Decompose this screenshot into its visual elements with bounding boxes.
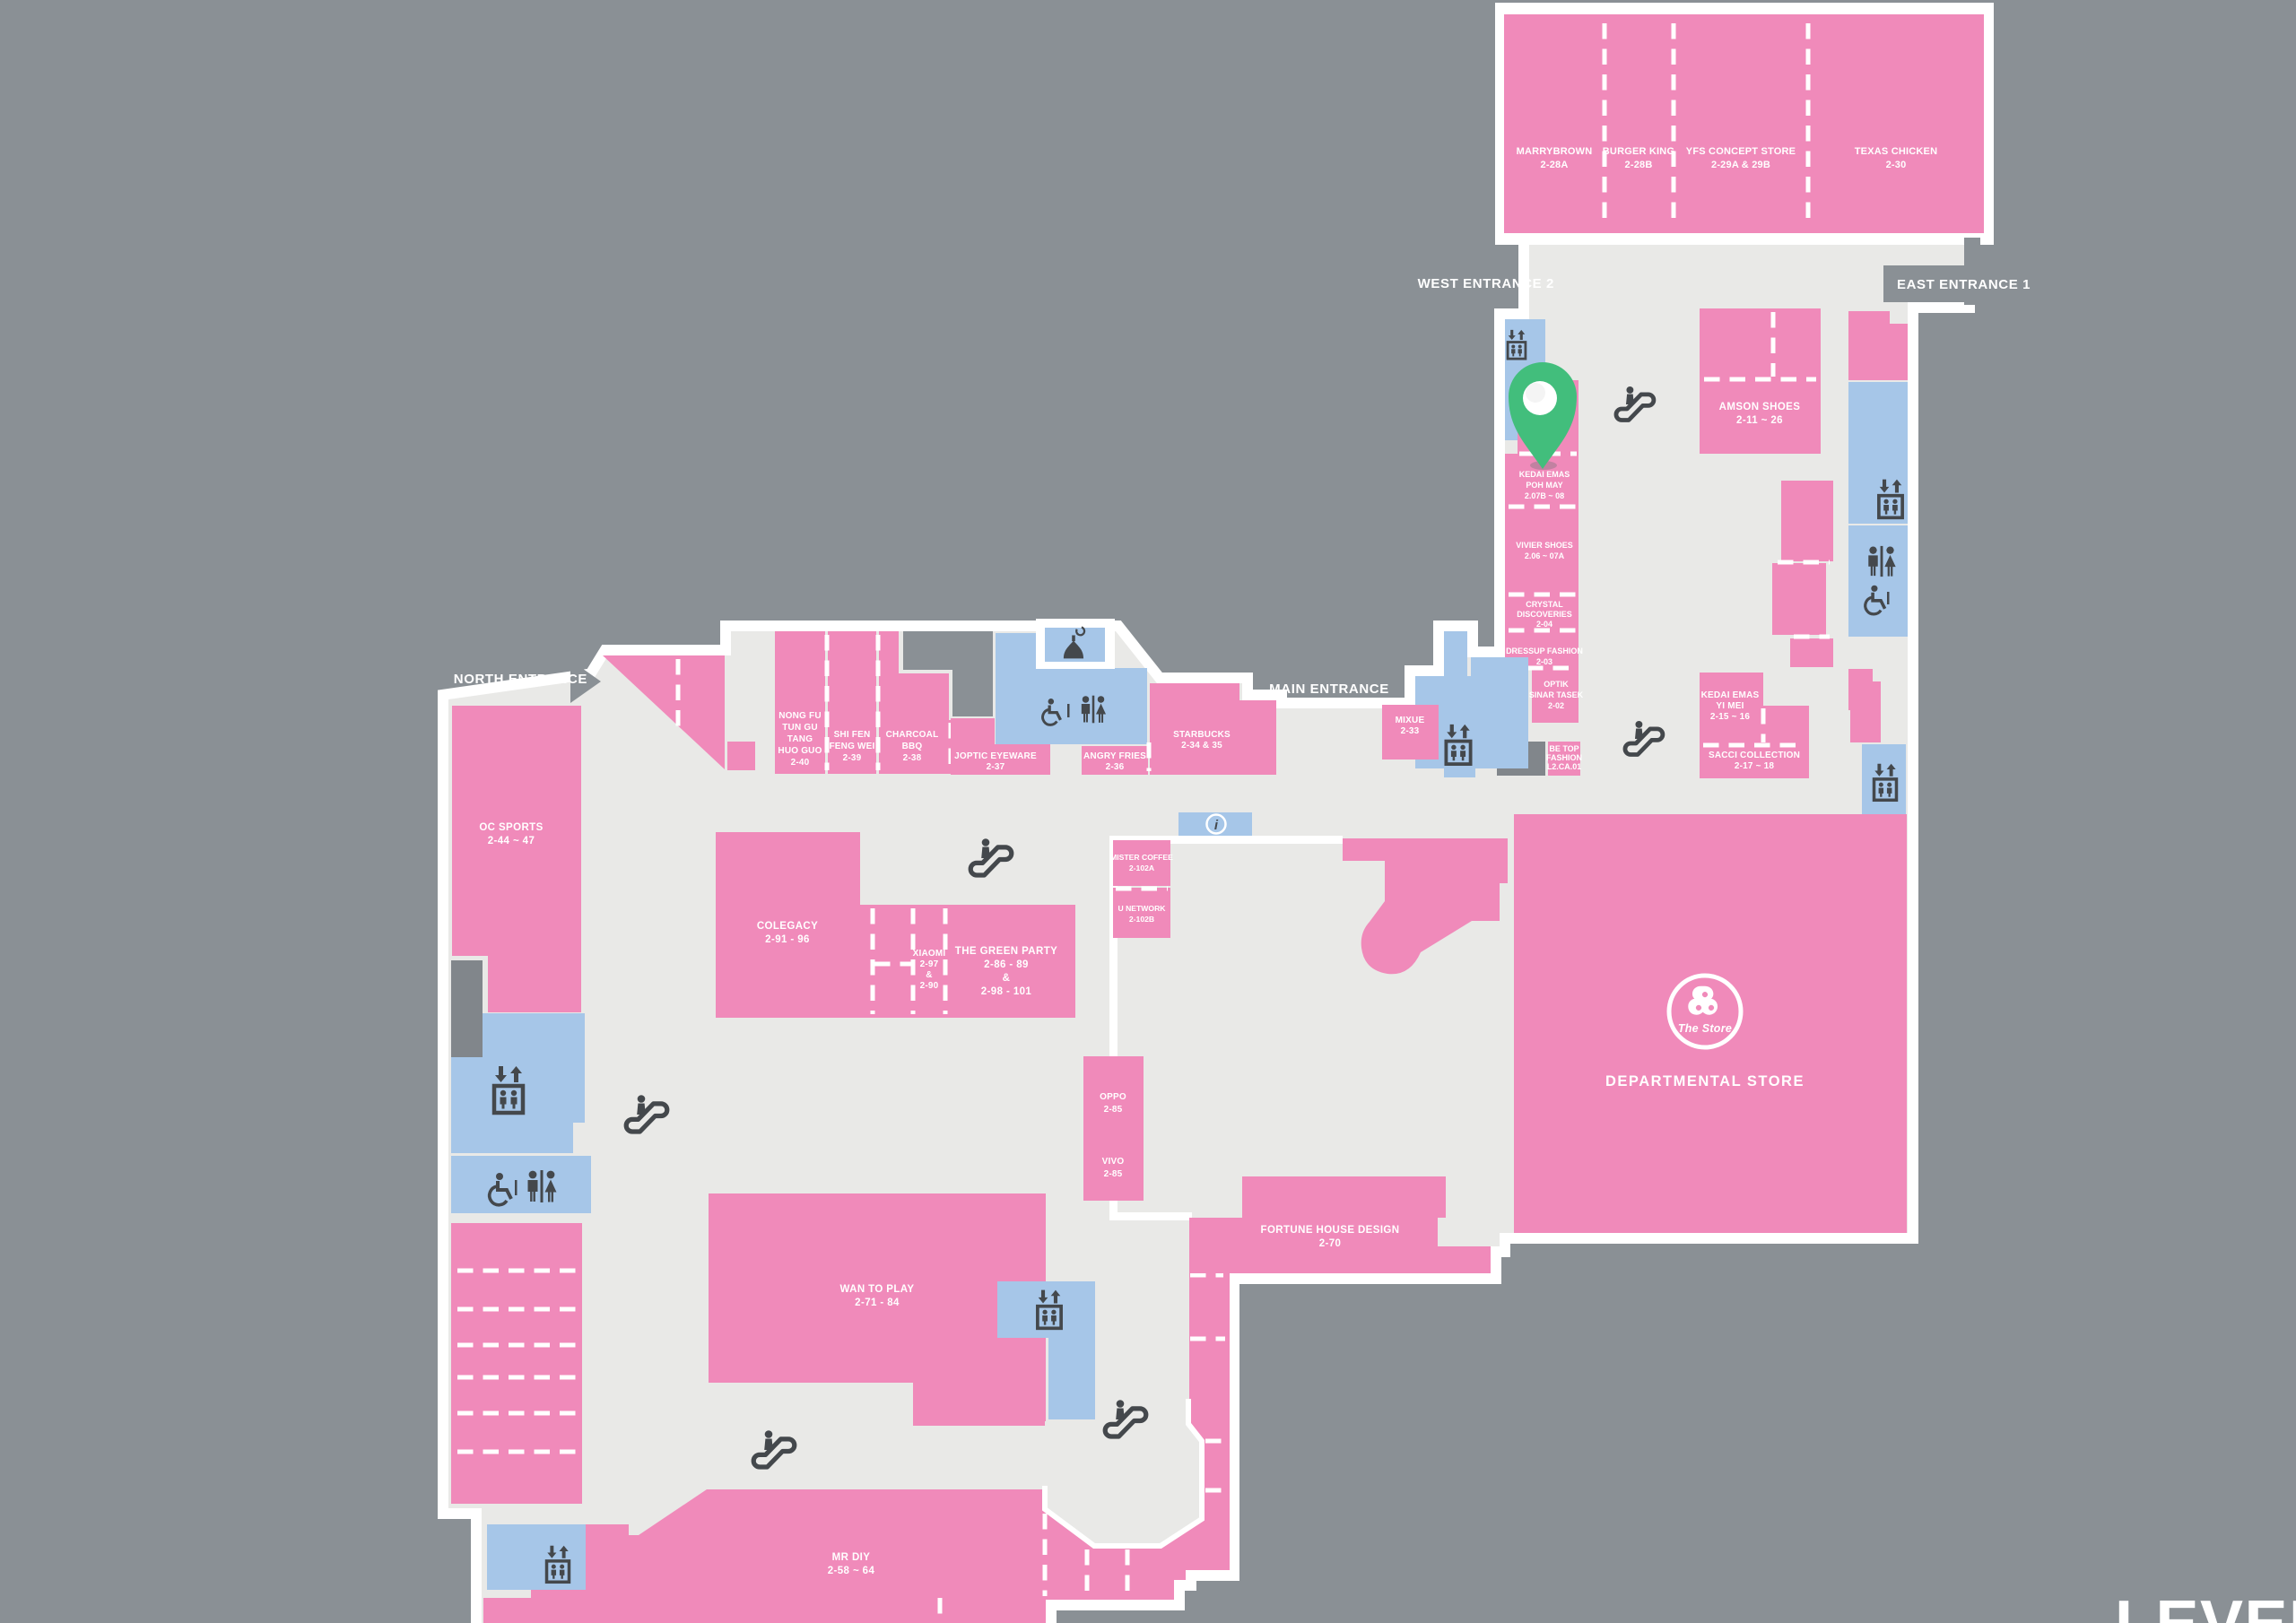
svg-text:SHI FEN: SHI FEN (834, 730, 871, 740)
svg-text:2-33: 2-33 (1401, 726, 1420, 736)
svg-text:BE TOP: BE TOP (1549, 744, 1578, 753)
svg-text:2-102A: 2-102A (1129, 864, 1154, 872)
svg-text:&: & (1003, 973, 1011, 984)
svg-text:CHARCOAL: CHARCOAL (886, 730, 939, 740)
svg-text:KEDAI EMAS: KEDAI EMAS (1701, 690, 1760, 700)
svg-text:2-97: 2-97 (920, 959, 939, 969)
svg-text:2-58 ~ 64: 2-58 ~ 64 (828, 1566, 875, 1576)
svg-text:THE GREEN PARTY: THE GREEN PARTY (955, 946, 1057, 957)
svg-text:2-39: 2-39 (843, 753, 862, 763)
svg-text:2-98 - 101: 2-98 - 101 (981, 986, 1032, 997)
svg-text:2-71 - 84: 2-71 - 84 (855, 1298, 900, 1308)
svg-text:MISTER COFFEE: MISTER COFFEE (1110, 853, 1173, 862)
svg-text:The Store: The Store (1678, 1022, 1732, 1035)
svg-text:WEST ENTRANCE 2: WEST ENTRANCE 2 (1418, 276, 1554, 291)
svg-text:2-02: 2-02 (1548, 701, 1564, 710)
svg-text:HUO GUO: HUO GUO (778, 746, 822, 756)
svg-text:WAN TO PLAY: WAN TO PLAY (840, 1284, 915, 1295)
svg-text:L2.CA.01: L2.CA.01 (1547, 762, 1582, 771)
svg-text:FENG WEI: FENG WEI (829, 742, 874, 751)
svg-text:SINAR TASEK: SINAR TASEK (1529, 690, 1584, 699)
svg-text:2-91 - 96: 2-91 - 96 (765, 934, 810, 945)
svg-text:&: & (926, 970, 932, 980)
svg-text:BBQ: BBQ (902, 742, 923, 751)
svg-text:2-86 - 89: 2-86 - 89 (984, 959, 1029, 970)
svg-text:2-102B: 2-102B (1129, 915, 1154, 924)
svg-text:2-29A & 29B: 2-29A & 29B (1711, 160, 1770, 170)
svg-text:FASHION: FASHION (1546, 753, 1582, 762)
svg-text:2-44 ~ 47: 2-44 ~ 47 (488, 836, 535, 846)
svg-text:2.06 ~ 07A: 2.06 ~ 07A (1525, 551, 1565, 560)
svg-text:POH MAY: POH MAY (1526, 481, 1562, 490)
svg-text:2-15 ~ 16: 2-15 ~ 16 (1710, 712, 1751, 722)
svg-text:2-28B: 2-28B (1625, 160, 1653, 170)
svg-text:CRYSTAL: CRYSTAL (1526, 600, 1563, 609)
svg-text:2-04: 2-04 (1536, 620, 1552, 629)
svg-text:ANGRY FRIES: ANGRY FRIES (1083, 751, 1146, 761)
svg-text:2-85: 2-85 (1104, 1105, 1123, 1115)
svg-text:VIVO: VIVO (1102, 1157, 1125, 1167)
svg-text:KEDAI EMAS: KEDAI EMAS (1519, 470, 1570, 479)
svg-text:NORTH ENTRANCE: NORTH ENTRANCE (454, 672, 587, 687)
svg-text:MARRYBROWN: MARRYBROWN (1517, 146, 1593, 157)
svg-text:FORTUNE HOUSE DESIGN: FORTUNE HOUSE DESIGN (1261, 1225, 1400, 1236)
svg-text:DRESSUP FASHION: DRESSUP FASHION (1506, 647, 1583, 655)
svg-text:2-37: 2-37 (987, 762, 1005, 772)
svg-text:NONG FU: NONG FU (778, 711, 822, 721)
svg-text:2-11 ~ 26: 2-11 ~ 26 (1736, 415, 1783, 426)
svg-text:TUN GU: TUN GU (782, 723, 818, 733)
svg-text:2-38: 2-38 (903, 753, 922, 763)
svg-text:OPPO: OPPO (1100, 1092, 1126, 1102)
svg-text:2-34 & 35: 2-34 & 35 (1181, 741, 1222, 751)
svg-text:EAST ENTRANCE 1: EAST ENTRANCE 1 (1897, 277, 2031, 292)
svg-text:2-28A: 2-28A (1541, 160, 1569, 170)
svg-text:2-36: 2-36 (1106, 762, 1125, 772)
svg-text:U NETWORK: U NETWORK (1118, 904, 1167, 913)
svg-text:2-30: 2-30 (1886, 160, 1907, 170)
svg-text:YFS CONCEPT STORE: YFS CONCEPT STORE (1686, 146, 1796, 157)
svg-text:2-70: 2-70 (1319, 1238, 1342, 1249)
svg-text:DEPARTMENTAL STORE: DEPARTMENTAL STORE (1605, 1073, 1805, 1089)
svg-text:XIAOMI: XIAOMI (913, 949, 946, 959)
svg-text:OC SPORTS: OC SPORTS (479, 822, 543, 833)
svg-text:AMSON SHOES: AMSON SHOES (1719, 402, 1801, 412)
svg-text:BURGER KING: BURGER KING (1603, 146, 1674, 157)
svg-text:TANG: TANG (787, 734, 813, 744)
svg-text:STARBUCKS: STARBUCKS (1173, 730, 1231, 740)
svg-text:MAIN ENTRANCE: MAIN ENTRANCE (1269, 681, 1389, 697)
svg-text:2-90: 2-90 (920, 981, 939, 991)
svg-text:JOPTIC EYEWARE: JOPTIC EYEWARE (954, 751, 1037, 761)
svg-text:SACCI COLLECTION: SACCI COLLECTION (1709, 751, 1800, 760)
svg-text:2-03: 2-03 (1536, 657, 1552, 666)
svg-text:OPTIK: OPTIK (1544, 680, 1569, 689)
svg-text:2-40: 2-40 (791, 758, 810, 768)
svg-text:MR DIY: MR DIY (832, 1552, 871, 1563)
svg-text:YI MEI: YI MEI (1716, 701, 1744, 711)
svg-text:DISCOVERIES: DISCOVERIES (1517, 610, 1572, 619)
svg-text:MIXUE: MIXUE (1396, 716, 1425, 725)
svg-text:TEXAS CHICKEN: TEXAS CHICKEN (1855, 146, 1937, 157)
svg-text:VIVIER SHOES: VIVIER SHOES (1516, 541, 1573, 550)
svg-text:LEVEL: LEVEL (2115, 1588, 2296, 1623)
svg-text:2-85: 2-85 (1104, 1169, 1123, 1179)
svg-text:COLEGACY: COLEGACY (757, 921, 818, 932)
svg-text:2.07B ~ 08: 2.07B ~ 08 (1525, 491, 1564, 500)
svg-text:2-17 ~ 18: 2-17 ~ 18 (1735, 761, 1775, 771)
